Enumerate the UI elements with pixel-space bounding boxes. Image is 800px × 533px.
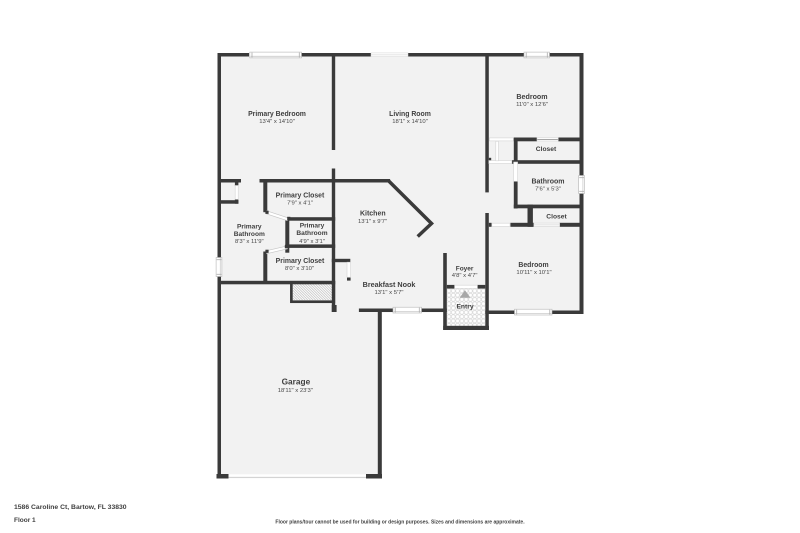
svg-text:8'3" x 11'9": 8'3" x 11'9" xyxy=(235,239,264,245)
svg-text:13'4" x 14'10": 13'4" x 14'10" xyxy=(259,119,295,125)
svg-text:Bathroom: Bathroom xyxy=(531,179,564,186)
svg-text:10'11" x 10'1": 10'11" x 10'1" xyxy=(516,270,551,276)
svg-text:Bathroom: Bathroom xyxy=(296,230,327,237)
svg-text:Kitchen: Kitchen xyxy=(360,211,386,218)
svg-text:18'1" x 14'10": 18'1" x 14'10" xyxy=(392,119,428,125)
svg-text:11'0" x 12'6": 11'0" x 12'6" xyxy=(516,102,548,108)
svg-text:18'11" x 23'3": 18'11" x 23'3" xyxy=(278,388,313,394)
svg-text:Bedroom: Bedroom xyxy=(516,93,547,101)
svg-text:Primary Closet: Primary Closet xyxy=(276,258,325,265)
svg-text:Bedroom: Bedroom xyxy=(518,262,548,269)
svg-text:1586 Caroline Ct, Bartow, FL 3: 1586 Caroline Ct, Bartow, FL 33830 xyxy=(14,504,127,511)
svg-text:Foyer: Foyer xyxy=(456,265,474,272)
svg-text:Garage: Garage xyxy=(282,376,311,386)
svg-text:Primary: Primary xyxy=(300,222,325,229)
svg-text:4'8" x 4'7": 4'8" x 4'7" xyxy=(452,273,478,279)
svg-text:7'9" x 4'1": 7'9" x 4'1" xyxy=(287,201,313,207)
svg-text:Living Room: Living Room xyxy=(389,111,431,118)
svg-text:Primary: Primary xyxy=(237,223,262,230)
svg-text:13'1" x 9'7": 13'1" x 9'7" xyxy=(358,219,387,225)
svg-text:Primary Closet: Primary Closet xyxy=(276,192,325,199)
svg-text:4'9" x 3'1": 4'9" x 3'1" xyxy=(299,239,325,245)
svg-text:Floor 1: Floor 1 xyxy=(14,517,36,524)
svg-text:8'0" x 3'10": 8'0" x 3'10" xyxy=(285,266,314,272)
svg-text:7'6" x 5'3": 7'6" x 5'3" xyxy=(535,187,561,193)
svg-text:Entry: Entry xyxy=(456,304,473,311)
svg-text:Floor plans/tour cannot be use: Floor plans/tour cannot be used for buil… xyxy=(275,520,525,526)
svg-text:Primary Bedroom: Primary Bedroom xyxy=(248,111,306,118)
svg-text:Breakfast Nook: Breakfast Nook xyxy=(363,280,416,289)
svg-text:Closet: Closet xyxy=(546,214,567,221)
svg-text:Closet: Closet xyxy=(536,146,557,153)
svg-text:Bathroom: Bathroom xyxy=(234,231,265,238)
svg-text:13'1" x 5'7": 13'1" x 5'7" xyxy=(374,290,403,296)
